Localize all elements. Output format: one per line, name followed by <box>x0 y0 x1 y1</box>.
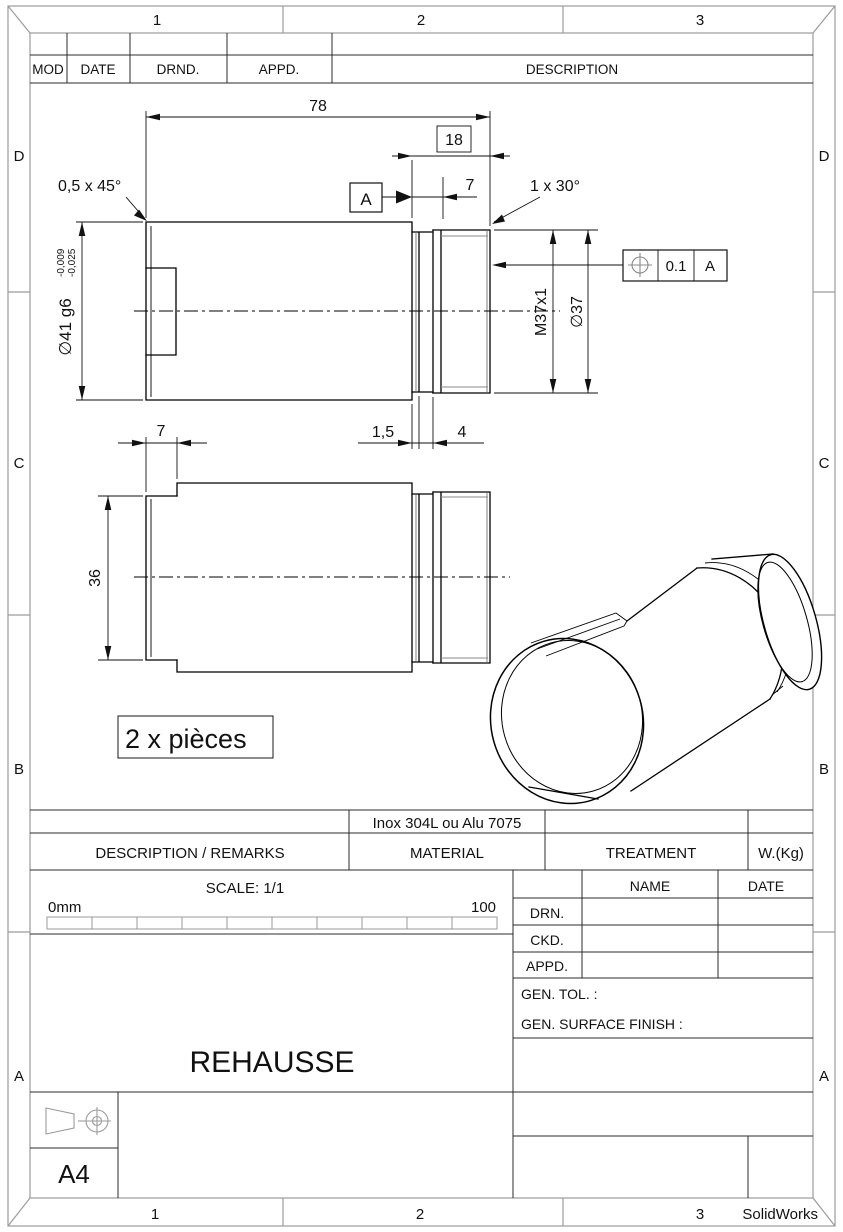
drawing-title: REHAUSSE <box>189 1046 354 1079</box>
isometric-view <box>471 548 834 822</box>
dim-shaft-tol-upper: -0,009 <box>56 248 67 277</box>
zone-row-d-right: D <box>819 148 830 165</box>
gen-surface-label: GEN. SURFACE FINISH : <box>521 1016 683 1032</box>
rev-header-date: DATE <box>80 62 115 77</box>
cad-drawing-svg: 1 2 3 1 2 3 D C B A D C B A SolidWorks M… <box>0 0 843 1232</box>
rev-header-drnd: DRND. <box>157 62 200 77</box>
header-weight: W.(Kg) <box>758 845 804 862</box>
row-appd: APPD. <box>526 958 568 974</box>
front-view <box>134 222 560 400</box>
header-treatment: TREATMENT <box>606 845 697 862</box>
zone-col-2-bottom: 2 <box>416 1206 424 1223</box>
dim-thread-lead: 7 <box>466 177 475 194</box>
zone-col-1-bottom: 1 <box>151 1206 159 1223</box>
col-name: NAME <box>630 878 670 894</box>
header-description-remarks: DESCRIPTION / REMARKS <box>95 845 284 862</box>
zone-row-a-right: A <box>819 1068 829 1085</box>
dim-shaft-tol-lower: -0,025 <box>67 248 78 277</box>
geo-tol-datum: A <box>705 258 715 275</box>
revision-table: MOD DATE DRND. APPD. DESCRIPTION <box>30 33 813 83</box>
zone-row-c-left: C <box>14 455 25 472</box>
zone-row-b-left: B <box>14 761 24 778</box>
scale-label: SCALE: 1/1 <box>206 880 284 897</box>
zone-row-d-left: D <box>14 148 25 165</box>
zone-col-3-bottom: 3 <box>696 1206 704 1223</box>
zone-row-a-left: A <box>14 1068 24 1085</box>
dim-thread-zone: 18 <box>445 132 463 149</box>
quantity-note-text: 2 x pièces <box>125 724 247 754</box>
row-drn: DRN. <box>530 905 564 921</box>
zone-row-b-right: B <box>819 761 829 778</box>
material-value: Inox 304L ou Alu 7075 <box>373 815 522 832</box>
dim-shaft-dia: ∅41 g6 <box>56 298 75 355</box>
geo-tolerance-frame: 0.1 A <box>492 250 727 281</box>
row-ckd: CKD. <box>530 932 563 948</box>
dim-chamfer-right: 1 x 30° <box>530 178 580 195</box>
zone-row-c-right: C <box>819 455 830 472</box>
sheet-size: A4 <box>58 1159 90 1189</box>
dim-thread-dia: ∅37 <box>569 296 586 328</box>
rev-header-appd: APPD. <box>259 62 300 77</box>
dim-overall-length: 78 <box>309 98 327 115</box>
dim-step-width: 7 <box>157 423 166 440</box>
scale-ruler <box>47 917 497 929</box>
projection-symbol-icon <box>46 1107 111 1135</box>
title-block: Inox 304L ou Alu 7075 DESCRIPTION / REMA… <box>30 810 813 1198</box>
zone-col-3-top: 3 <box>696 12 704 29</box>
zone-col-2-top: 2 <box>417 12 425 29</box>
gen-tol-label: GEN. TOL. : <box>521 986 598 1002</box>
dim-flat-width: 36 <box>87 569 104 587</box>
dim-chamfer-left: 0,5 x 45° <box>58 178 121 195</box>
side-view <box>134 483 510 672</box>
dimensions: 78 18 A 7 0,5 x 45° 1 x 30° ∅41 g6 -0,00… <box>56 98 727 660</box>
position-symbol-icon <box>628 253 652 277</box>
header-material: MATERIAL <box>410 845 484 862</box>
scale-end-label: 100 <box>471 899 496 916</box>
dim-groove-relief: 4 <box>458 424 467 441</box>
datum-a-label: A <box>360 190 372 209</box>
zone-col-1-top: 1 <box>153 12 161 29</box>
drawing-sheet: 1 2 3 1 2 3 D C B A D C B A SolidWorks M… <box>0 0 843 1232</box>
dim-thread-spec: M37x1 <box>533 288 550 336</box>
rev-header-mod: MOD <box>32 62 64 77</box>
app-name: SolidWorks <box>742 1206 818 1223</box>
quantity-note: 2 x pièces <box>118 716 273 758</box>
sheet-border: 1 2 3 1 2 3 D C B A D C B A SolidWorks <box>8 6 835 1226</box>
dim-groove-width: 1,5 <box>372 424 394 441</box>
scale-start-label: 0mm <box>48 899 81 916</box>
rev-header-description: DESCRIPTION <box>526 62 618 77</box>
geo-tol-value: 0.1 <box>666 258 687 275</box>
col-date: DATE <box>748 878 784 894</box>
